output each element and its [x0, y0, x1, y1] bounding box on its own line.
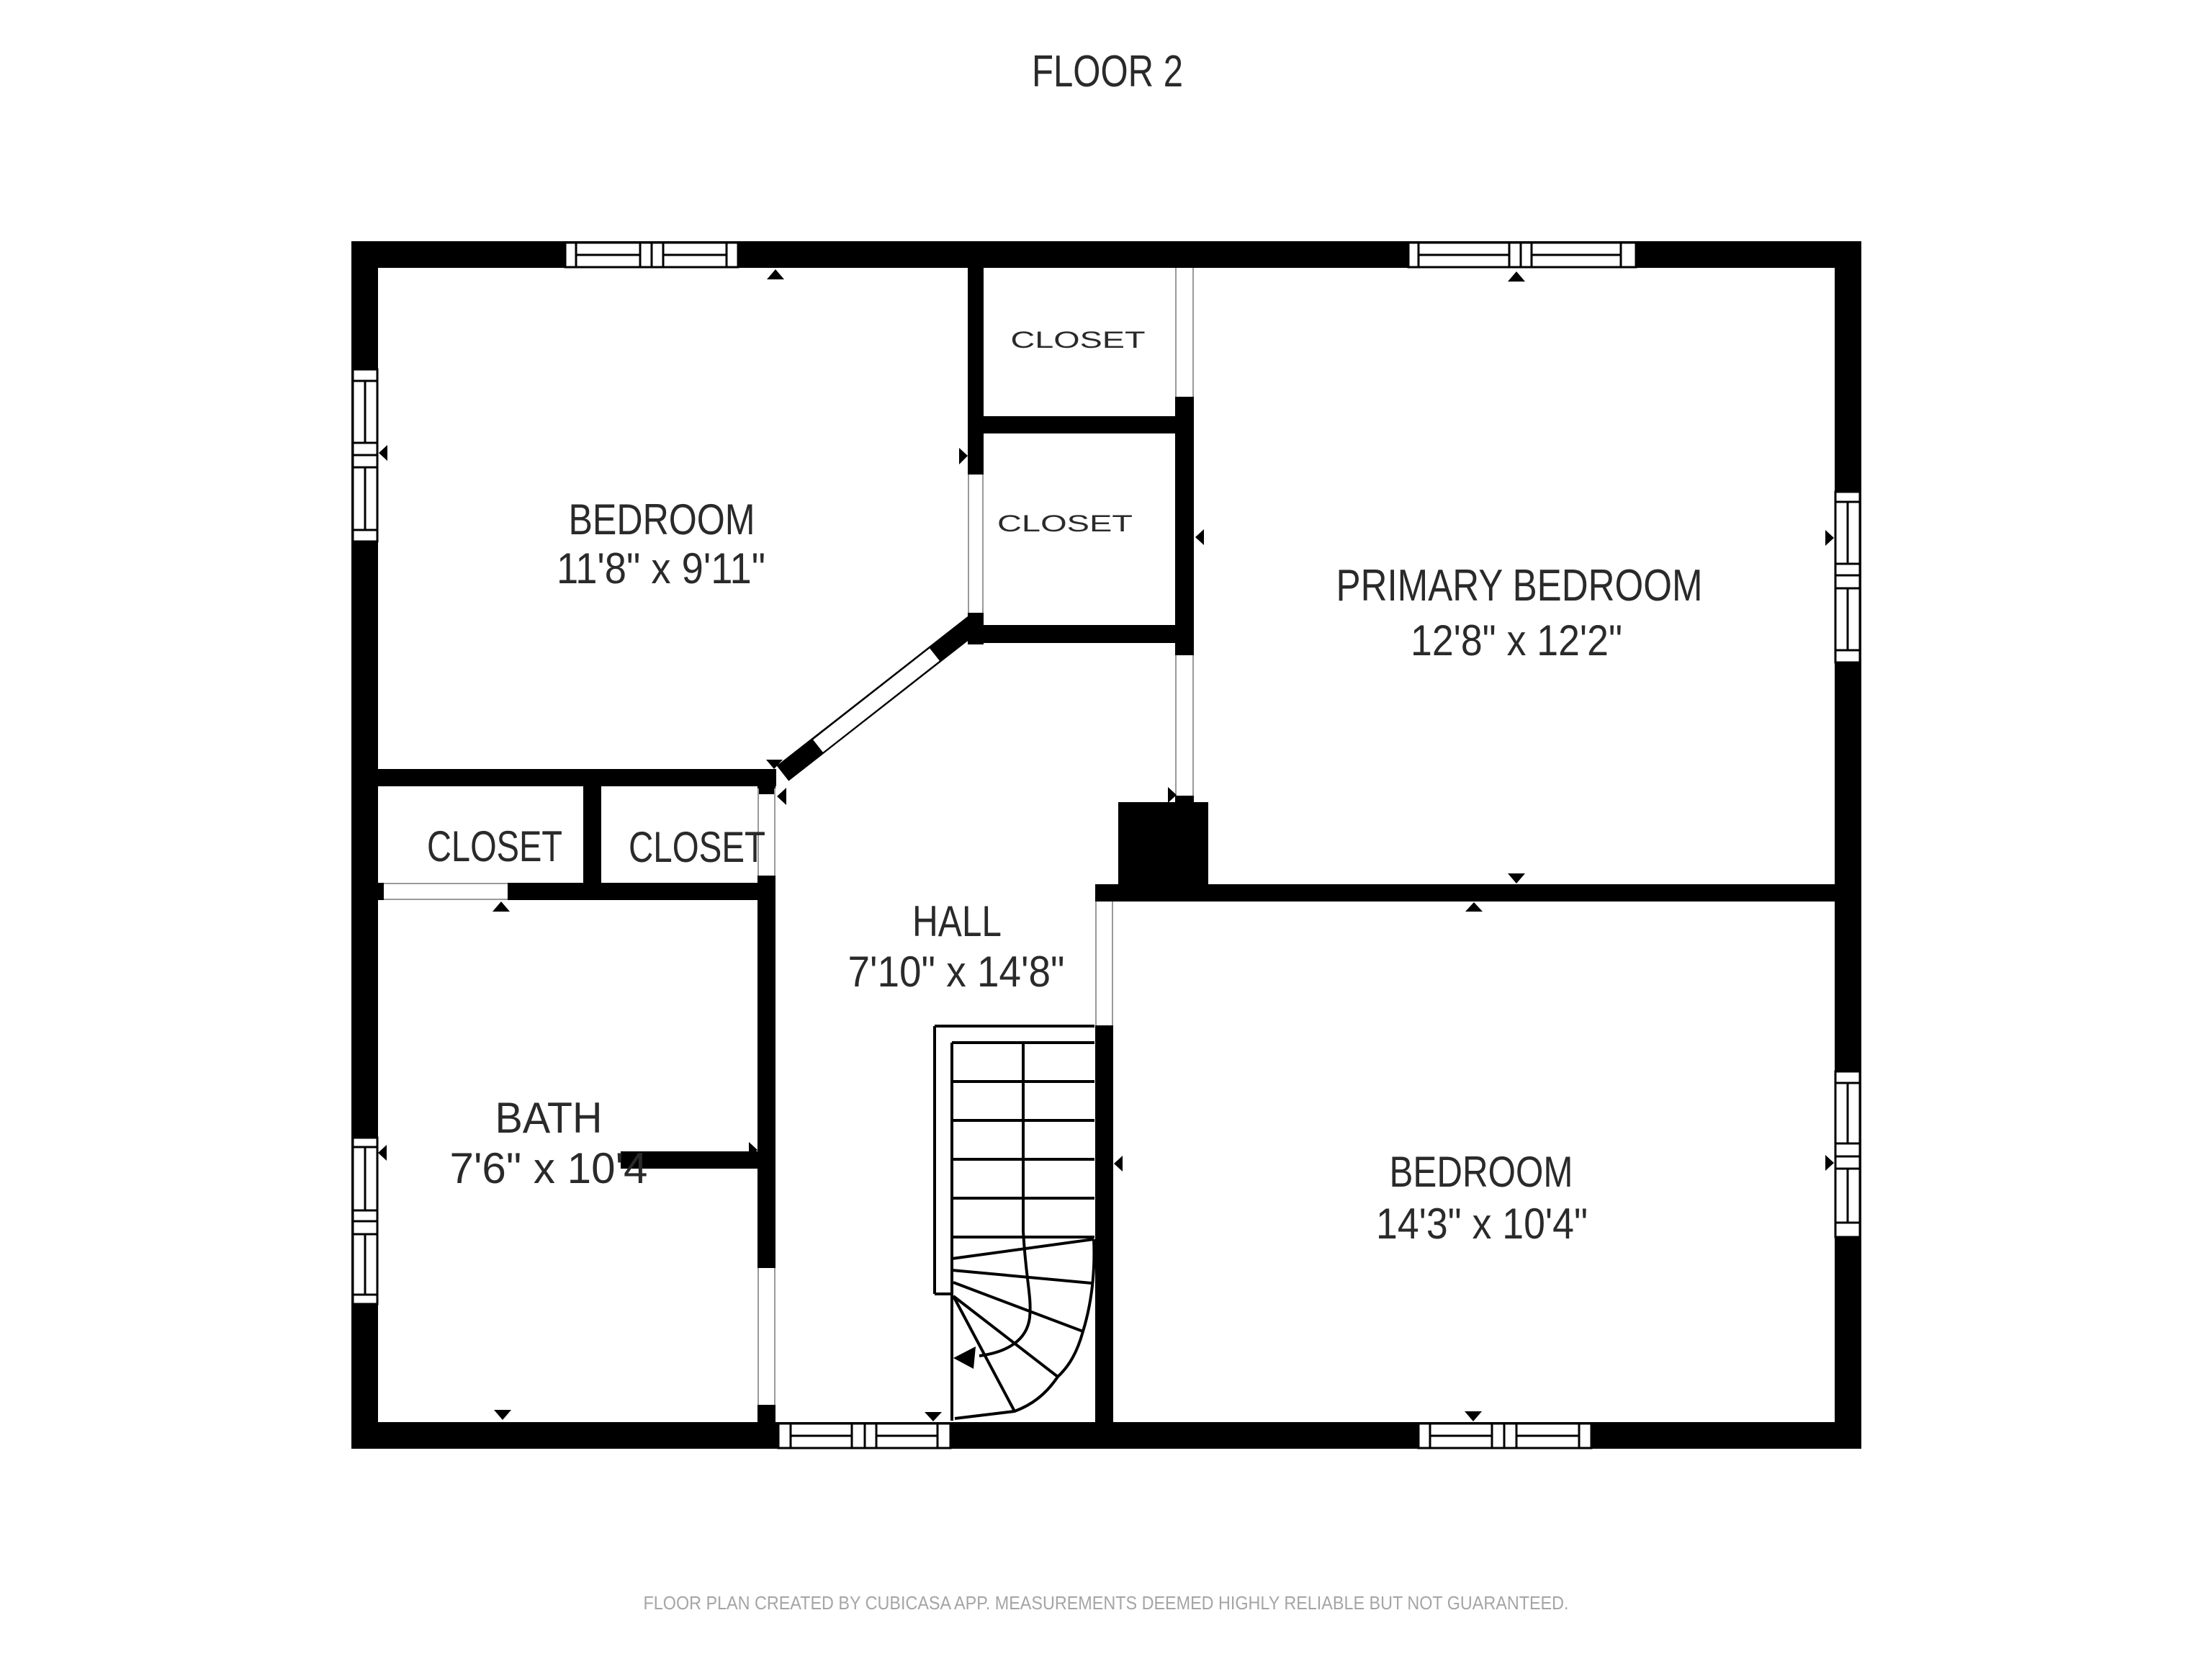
svg-text:BEDROOM: BEDROOM [1390, 1148, 1573, 1196]
svg-text:CLOSET: CLOSET [427, 822, 562, 871]
svg-text:FLOOR PLAN CREATED BY CUBICASA: FLOOR PLAN CREATED BY CUBICASA APP. MEAS… [644, 1592, 1569, 1614]
svg-text:CLOSET: CLOSET [629, 823, 765, 871]
svg-text:12'8" x 12'2": 12'8" x 12'2" [1411, 616, 1622, 665]
svg-text:CLOSET: CLOSET [1011, 327, 1146, 353]
svg-text:7'6" x 10'4: 7'6" x 10'4 [450, 1144, 648, 1192]
svg-text:BATH: BATH [495, 1094, 603, 1142]
svg-text:BEDROOM: BEDROOM [569, 495, 755, 544]
svg-text:PRIMARY BEDROOM: PRIMARY BEDROOM [1336, 561, 1703, 611]
svg-text:14'3" x 10'4": 14'3" x 10'4" [1376, 1200, 1588, 1248]
svg-text:FLOOR 2: FLOOR 2 [1032, 47, 1183, 96]
svg-text:11'8" x 9'11": 11'8" x 9'11" [557, 544, 765, 593]
svg-text:7'10" x 14'8": 7'10" x 14'8" [848, 948, 1065, 996]
svg-text:HALL: HALL [912, 897, 1002, 945]
svg-text:CLOSET: CLOSET [997, 511, 1133, 536]
